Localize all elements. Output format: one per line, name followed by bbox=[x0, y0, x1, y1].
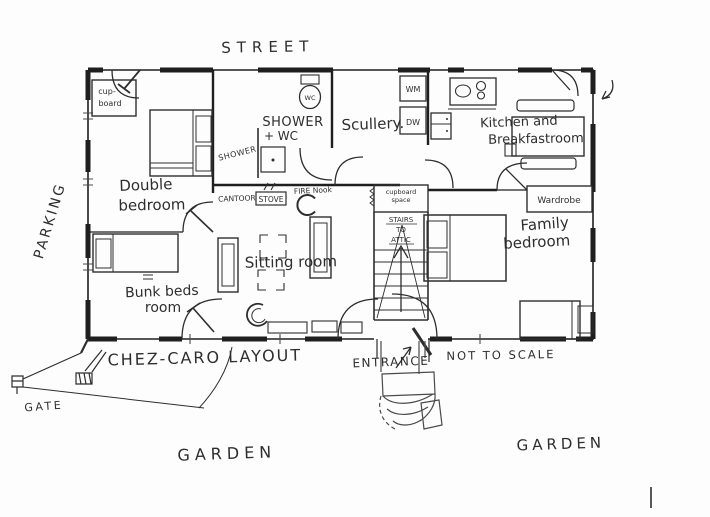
not-to-scale-label: NOT TO SCALE bbox=[446, 347, 555, 363]
armchair bbox=[218, 238, 238, 292]
hob-burner bbox=[478, 92, 485, 99]
bunk-room-door-leaf bbox=[187, 303, 214, 332]
double-bedroom-label-1: Double bbox=[119, 175, 173, 195]
bench bbox=[521, 158, 576, 169]
window-seat bbox=[312, 321, 337, 332]
armchair-cushion bbox=[222, 244, 234, 286]
window-tick-marks bbox=[83, 113, 480, 344]
shower-drain bbox=[272, 159, 275, 162]
shower-wc-label-2: + WC bbox=[264, 129, 298, 143]
cupboard-label-1: cup- bbox=[98, 87, 116, 96]
fridge-handle bbox=[446, 130, 448, 132]
kitchen-label-1: Kitchen and bbox=[480, 114, 558, 132]
family-single-bed bbox=[520, 301, 580, 339]
parking-label: PARKING bbox=[31, 181, 69, 261]
bunk-beds-room: Bunk beds room bbox=[93, 234, 199, 316]
toilet-cistern bbox=[301, 75, 319, 84]
street-label: STREET bbox=[221, 37, 315, 57]
fire-nook-alcove bbox=[297, 195, 315, 215]
path-marks bbox=[85, 350, 106, 372]
pillow bbox=[196, 146, 211, 171]
kitchen-door-arc bbox=[425, 160, 453, 188]
sitting-room: Sitting room bbox=[218, 217, 362, 333]
family-bedroom-label-2: bedroom bbox=[503, 231, 571, 252]
sitting-room-label: Sitting room bbox=[245, 252, 338, 272]
bin-box bbox=[421, 400, 442, 429]
cupboard-box bbox=[92, 80, 136, 116]
double-bed bbox=[150, 110, 212, 176]
bunk-room-label-2: room bbox=[145, 300, 181, 316]
shower-small-label: SHOWER bbox=[217, 144, 257, 162]
cupboard-space-label-1: cupboard bbox=[386, 188, 417, 196]
family-bedroom-door-arc bbox=[497, 163, 527, 190]
pillow bbox=[196, 116, 211, 142]
entrance-door-leaf bbox=[413, 328, 431, 355]
side-table bbox=[258, 270, 284, 290]
kitchen-label-2: Breakfastroom bbox=[488, 131, 584, 148]
shower-wc-room: WC SHOWER SHOWER + WC bbox=[217, 75, 323, 178]
round-chair-inner bbox=[252, 309, 265, 323]
kitchen-counter bbox=[450, 78, 496, 105]
garden-right-label: GARDEN bbox=[516, 433, 605, 454]
gate-label: GATE bbox=[24, 399, 64, 415]
dw-label: DW bbox=[406, 118, 420, 127]
porch-steps bbox=[383, 394, 435, 425]
shower-wc-label-1: SHOWER bbox=[262, 115, 323, 130]
double-bedroom: cup- board Double bedroom bbox=[92, 80, 212, 215]
kitchen-breakfast-room: Kitchen and Breakfastroom Wardrobe bbox=[431, 78, 592, 212]
window-seat bbox=[341, 322, 362, 333]
wc-label: WC bbox=[305, 94, 316, 102]
scullery-label: Scullery. bbox=[341, 114, 404, 134]
pillow bbox=[96, 239, 111, 268]
double-bedroom-label-2: bedroom bbox=[118, 195, 185, 214]
pillow bbox=[427, 221, 447, 248]
back-door-arrow-icon bbox=[602, 80, 613, 99]
stove-label: STOVE bbox=[259, 195, 284, 204]
fire-nook-label: FIRE Nook bbox=[294, 185, 333, 196]
entrance-label: ENTRANCE bbox=[352, 354, 429, 371]
floor-plan-sketch: cupboard space STAIRS TO ATTIC cup- boar… bbox=[0, 0, 710, 517]
wardrobe-label: Wardrobe bbox=[537, 196, 581, 206]
pillow bbox=[427, 252, 447, 278]
bed-linen-lines bbox=[150, 110, 193, 176]
gate-post bbox=[76, 373, 92, 384]
stairs-up-arrow-icon bbox=[394, 246, 408, 312]
cantoor-label: CANTOOR bbox=[218, 193, 256, 203]
shower-room-door-arc bbox=[300, 148, 332, 180]
cupboard-label-2: board bbox=[98, 99, 121, 108]
cupboard-space-label-2: space bbox=[391, 196, 410, 204]
bench bbox=[517, 100, 574, 111]
gate-post bbox=[12, 376, 23, 394]
fridge bbox=[431, 113, 451, 139]
stairs-label-1: STAIRS bbox=[389, 216, 414, 224]
scullery: WM DW Scullery. bbox=[341, 76, 426, 134]
family-bedroom: Family bedroom bbox=[424, 213, 593, 339]
scullery-door-arc bbox=[335, 157, 363, 185]
bunk-room-label-1: Bunk beds bbox=[125, 283, 199, 302]
kitchen-garden-door-arc bbox=[552, 70, 578, 96]
wm-label: WM bbox=[406, 85, 421, 94]
corridor-features: CANTOOR STOVE FIRE Nook bbox=[218, 183, 333, 215]
floor-plan-svg: cupboard space STAIRS TO ATTIC cup- boar… bbox=[0, 0, 710, 517]
wall-stub bbox=[81, 339, 88, 353]
sink bbox=[456, 85, 471, 97]
stairs-label-3: ATTIC bbox=[391, 236, 411, 244]
fence-line bbox=[23, 353, 81, 379]
street-side-door-arc bbox=[112, 70, 139, 98]
page-title: CHEZ-CARO LAYOUT bbox=[107, 345, 302, 369]
stairs-label-2: TO bbox=[395, 226, 406, 234]
garden-left-label: GARDEN bbox=[177, 442, 276, 464]
porch-step bbox=[382, 372, 435, 396]
window-seat bbox=[268, 322, 307, 333]
hob-burner bbox=[477, 82, 486, 91]
fridge-handle bbox=[446, 118, 448, 120]
bunk-bed bbox=[93, 234, 178, 272]
